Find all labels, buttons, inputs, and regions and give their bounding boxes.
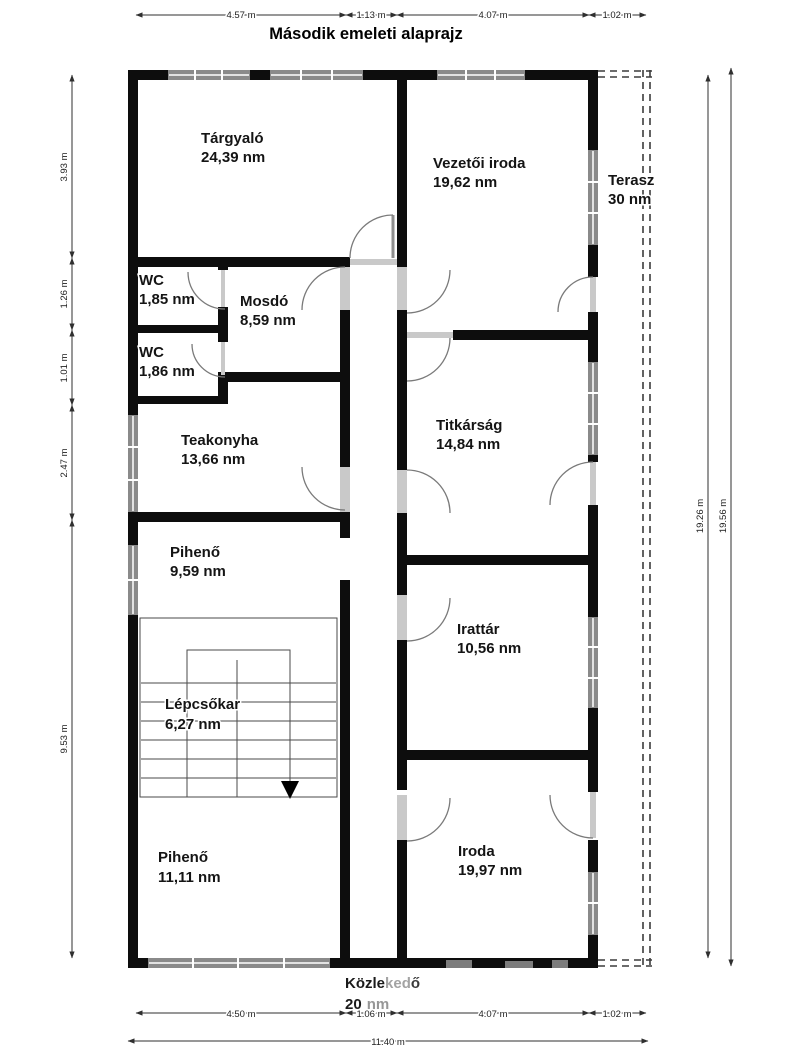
room-area-wc2: 1,86 nm	[139, 363, 195, 380]
stair-direction-arrow	[281, 781, 299, 799]
dimension-label-top-2: 1.13 m	[356, 10, 385, 21]
door-threshold	[340, 267, 350, 310]
wall-segment	[330, 958, 412, 968]
wall-segment	[397, 513, 407, 595]
dimension-label-bottom-total: 11.40 m	[371, 1037, 405, 1048]
wall-segment	[363, 70, 437, 80]
wall-segment	[128, 396, 228, 404]
door-threshold	[590, 277, 596, 312]
door-threshold	[221, 270, 225, 307]
wall-segment	[128, 257, 350, 267]
door-arc	[302, 267, 345, 310]
room-label-irattar: Irattár	[457, 621, 500, 638]
door-arc	[407, 470, 450, 513]
room-area-irattar: 10,56 nm	[457, 640, 521, 657]
room-label-teakonyha: Teakonyha	[181, 432, 259, 449]
dimension-label-left-2: 1.26 m	[59, 279, 70, 308]
wall-segment	[218, 262, 228, 270]
dimension-label-top-3: 4.07 m	[478, 10, 507, 21]
room-area-kozlekedo-part2: nm	[367, 996, 390, 1013]
dimension-label-right-inner: 19.26 m	[695, 499, 706, 533]
wall-segment	[340, 580, 350, 958]
dimension-label-top-1: 4.57 m	[226, 10, 255, 21]
room-area-iroda: 19,97 nm	[458, 862, 522, 879]
room-label-iroda: Iroda	[458, 843, 495, 860]
room-area-vezetoi-iroda: 19,62 nm	[433, 174, 497, 191]
dimension-label-top-4: 1.02 m	[602, 10, 631, 21]
wall-segment	[340, 310, 350, 467]
door-arc	[407, 598, 450, 641]
door-threshold	[590, 792, 596, 838]
door-threshold	[590, 462, 596, 505]
door-threshold	[397, 470, 407, 513]
door-threshold	[350, 259, 397, 265]
dimension-label-left-5: 9.53 m	[59, 724, 70, 753]
room-label-targyalo: Tárgyaló	[201, 130, 264, 147]
wall-segment	[588, 840, 598, 872]
wall-segment	[588, 70, 598, 150]
door-threshold	[221, 342, 225, 375]
room-label-kozlekedo-part3: ő	[411, 975, 420, 992]
room-label-kozlekedo-part1: Közle	[345, 975, 385, 992]
wall-segment	[128, 512, 350, 522]
wall-segment	[397, 840, 407, 958]
room-area-kozlekedo-part1: 20	[345, 996, 362, 1013]
door-arc	[407, 798, 450, 841]
door-threshold	[397, 795, 407, 840]
room-area-teakonyha: 13,66 nm	[181, 451, 245, 468]
door-threshold	[397, 595, 407, 640]
door-arc	[407, 270, 450, 313]
room-label-kozlekedo: Közlekedő	[345, 975, 420, 992]
wall-segment	[397, 310, 407, 470]
door-arc	[558, 277, 593, 312]
door-threshold	[397, 267, 407, 310]
page-title: Második emeleti alaprajz	[269, 25, 463, 43]
room-label-wc2: WC	[139, 344, 164, 361]
wall-segment	[128, 958, 148, 968]
room-label-wc1: WC	[139, 272, 164, 289]
wall-segment	[218, 307, 228, 342]
wall-segment	[397, 640, 407, 790]
room-area-lepcsokar: 6,27 nm	[165, 716, 221, 733]
wall-segment	[128, 70, 138, 415]
dimension-lines: 4.57 m 1.13 m 4.07 m 1.02 m 4.50 m 1.06 …	[59, 10, 731, 1048]
dimension-label-bottom-1: 4.50 m	[226, 1009, 255, 1020]
watermark-artifact	[446, 960, 472, 968]
room-area-titkarsag: 14,84 nm	[436, 436, 500, 453]
wall-segment	[525, 70, 598, 80]
room-label-lepcsokar: Lépcsőkar	[165, 696, 240, 713]
room-area-mosdo: 8,59 nm	[240, 312, 296, 329]
room-area-terasz: 30 nm	[608, 191, 651, 208]
room-area-piheno-2: 11,11 nm	[158, 869, 221, 886]
room-label-piheno-2: Pihenő	[158, 849, 208, 866]
dimension-label-left-4: 2.47 m	[59, 448, 70, 477]
door-arc	[302, 467, 345, 510]
floorplan-page: 4.57 m 1.13 m 4.07 m 1.02 m 4.50 m 1.06 …	[0, 0, 800, 1061]
floorplan-drawing: 4.57 m 1.13 m 4.07 m 1.02 m 4.50 m 1.06 …	[0, 0, 800, 1061]
watermark-artifact	[505, 961, 533, 968]
wall-segment	[588, 455, 598, 462]
room-area-targyalo: 24,39 nm	[201, 149, 265, 166]
dimension-label-left-3: 1.01 m	[59, 353, 70, 382]
room-label-piheno-1: Pihenő	[170, 544, 220, 561]
watermark-artifact	[552, 960, 568, 968]
door-arc	[350, 215, 393, 258]
room-label-terasz: Terasz	[608, 172, 654, 189]
room-label-kozlekedo-part2: ked	[385, 975, 411, 992]
wall-segment	[128, 615, 138, 968]
door-threshold	[407, 332, 453, 338]
wall-segment	[397, 80, 407, 267]
dimension-label-left-1: 3.93 m	[59, 152, 70, 181]
walls	[128, 70, 598, 968]
wall-segment	[407, 750, 598, 760]
room-area-kozlekedo: 20nm	[345, 996, 389, 1013]
wall-segment	[128, 325, 228, 333]
room-label-vezetoi-iroda: Vezetői iroda	[433, 155, 526, 172]
room-area-piheno-1: 9,59 nm	[170, 563, 226, 580]
door-arc	[550, 462, 593, 505]
dimension-label-bottom-4: 1.02 m	[602, 1009, 631, 1020]
wall-segment	[588, 245, 598, 277]
door-arc	[407, 338, 450, 381]
dimension-label-right-outer: 19.56 m	[718, 499, 729, 533]
wall-segment	[397, 555, 598, 565]
wall-segment	[250, 70, 270, 80]
door-threshold	[340, 467, 350, 512]
dimension-label-bottom-3: 4.07 m	[478, 1009, 507, 1020]
wall-segment	[218, 372, 350, 382]
room-label-titkarsag: Titkárság	[436, 417, 502, 434]
door-arc	[550, 795, 593, 838]
wall-segment	[453, 330, 598, 340]
room-label-mosdo: Mosdó	[240, 293, 288, 310]
room-area-wc1: 1,85 nm	[139, 291, 195, 308]
